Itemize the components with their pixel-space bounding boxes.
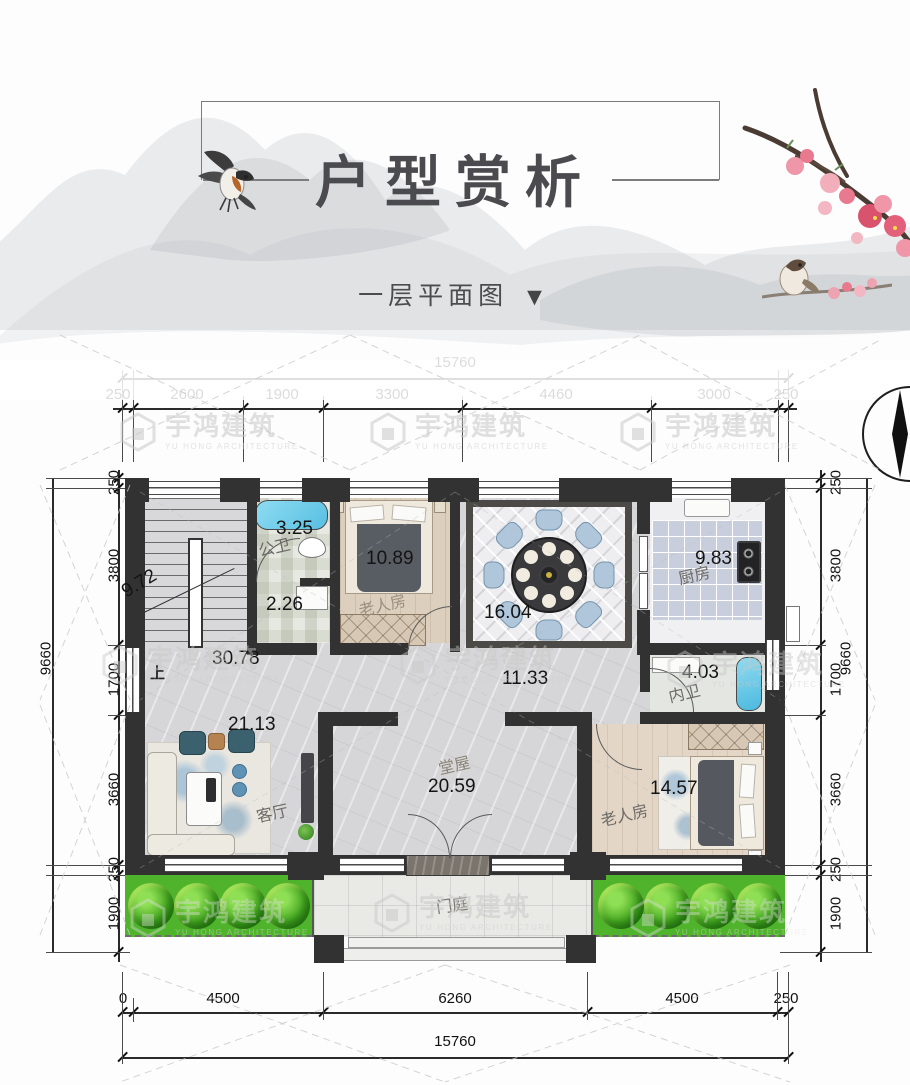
yuhong-logo-icon (618, 412, 658, 452)
toilet (298, 537, 326, 558)
dim-label: 6260 (425, 990, 485, 1007)
sofa-seat (147, 834, 235, 856)
step-post (314, 935, 344, 963)
bush (128, 883, 174, 929)
dim-label: 3660 (828, 760, 845, 820)
dining-chair (536, 620, 563, 641)
hallmid-area: 11.33 (502, 668, 548, 690)
wall-living-hall (318, 712, 333, 857)
dim-line (122, 1057, 788, 1059)
wall-pier (559, 478, 672, 502)
witness-line (780, 645, 826, 646)
yuhong-logo-icon (368, 412, 408, 452)
kitchen-sink (684, 499, 730, 517)
dim-bottom-total: 15760 (415, 1033, 495, 1050)
window-bottom-hall-l (340, 858, 404, 872)
window-bottom-hall-r (492, 858, 564, 872)
witness-line (780, 715, 826, 716)
witness-line (323, 972, 324, 1020)
entry-threshold (406, 855, 490, 876)
witness-line (46, 478, 130, 479)
porch-post (570, 852, 606, 880)
stairs-up-label: 上 (150, 662, 165, 683)
witness-line (780, 952, 872, 953)
stool (232, 782, 247, 797)
dim-label: 1900 (106, 884, 123, 944)
wall-bath2-bottom (640, 712, 785, 724)
bush (736, 883, 782, 929)
hallwest-area: 30.78 (212, 648, 260, 670)
flying-bird-icon (196, 146, 266, 221)
coffee-table-tray (206, 778, 216, 802)
dim-label: 4500 (652, 990, 712, 1007)
dim-label: 1700 (106, 650, 123, 710)
dim-line (52, 478, 54, 952)
dim-label: 1900 (828, 884, 845, 944)
dining-area: 16.04 (484, 602, 532, 624)
bush (644, 883, 690, 929)
watermark-cn: 宇鸿建筑 (165, 413, 299, 439)
watermark-cn: 宇鸿建筑 (415, 413, 549, 439)
dim-label: 4500 (193, 990, 253, 1007)
witness-line (587, 972, 588, 1020)
armchair (179, 731, 206, 755)
witness-line (46, 875, 130, 876)
dining-chair (484, 562, 505, 589)
witness-line (243, 396, 244, 462)
dining-chair (536, 510, 563, 531)
kitchen-door-leaf (639, 573, 648, 609)
bed-bottom-blanket (698, 760, 734, 846)
wall-pier (302, 478, 350, 502)
watermark: 宇鸿建筑YU HONG ARCHITECTURE (368, 412, 549, 452)
bed-top-pillow-r (391, 505, 426, 523)
witness-line (462, 396, 463, 462)
witness-line (46, 488, 130, 489)
bush (174, 883, 220, 929)
witness-line (651, 396, 652, 462)
wall-bath2-left (640, 655, 650, 692)
plant (298, 824, 314, 840)
window-right-hall (766, 640, 780, 690)
wall-kitchen-bottom (637, 643, 785, 655)
witness-line (46, 865, 130, 866)
dim-label: 3660 (106, 760, 123, 820)
bush (598, 883, 644, 929)
wall-pier (125, 478, 149, 502)
window-bottom-living (165, 858, 287, 872)
wall-pier (731, 478, 785, 502)
window-sill-right (786, 606, 800, 642)
dim-line (113, 408, 797, 410)
stove-burner (742, 565, 755, 578)
bedbottom-area: 14.57 (650, 778, 698, 800)
bathtub-right (736, 657, 762, 711)
sitting-bird-icon (762, 245, 892, 315)
dim-label: 250 (766, 990, 806, 1007)
wall-pier (428, 478, 479, 502)
watermark-text: 宇鸿建筑YU HONG ARCHITECTURE (165, 413, 299, 451)
bed-bottom-pillow (739, 764, 756, 799)
dim-left-total: 9660 (38, 629, 55, 689)
bush (220, 883, 266, 929)
mainhall-area: 20.59 (428, 776, 476, 798)
step-post (566, 935, 596, 963)
floorplan-page: 户型赏析 一层平面图▼ (0, 0, 910, 1085)
dim-line (122, 1012, 788, 1014)
side-table (208, 733, 225, 750)
stool (232, 764, 247, 779)
bed-top-pillow-l (349, 505, 384, 523)
porch-post (288, 852, 324, 880)
dim-label: 3800 (828, 536, 845, 596)
watermark: 宇鸿建筑YU HONG ARCHITECTURE (118, 412, 299, 452)
witness-line (788, 972, 789, 1064)
watermark-en: YU HONG ARCHITECTURE (415, 442, 549, 451)
dining-chair (594, 562, 615, 589)
dining-plates (542, 542, 556, 556)
bush (264, 883, 310, 929)
watermark-en: YU HONG ARCHITECTURE (165, 442, 299, 451)
yuhong-logo-icon (118, 412, 158, 452)
porch-step (348, 937, 565, 948)
wall-hall-bedroom (577, 712, 592, 857)
stair-rail (188, 538, 203, 648)
watermark: 宇鸿建筑YU HONG ARCHITECTURE (618, 412, 799, 452)
bed-bottom-pillow (739, 804, 756, 839)
window-left-hall (126, 648, 140, 712)
witness-line (780, 865, 872, 866)
witness-line (46, 952, 130, 953)
wall-dining-kitchen-up (637, 498, 650, 534)
witness-line (780, 875, 872, 876)
watermark-text: 宇鸿建筑YU HONG ARCHITECTURE (415, 413, 549, 451)
wall-pier (220, 478, 260, 502)
tv-console (301, 753, 314, 823)
living-area: 21.13 (228, 714, 276, 736)
bedtop-area: 10.89 (366, 548, 414, 570)
witness-line (133, 998, 134, 1022)
porch-step (336, 948, 577, 961)
dim-label: 250 (828, 453, 845, 513)
down-triangle-icon: ▼ (522, 283, 552, 312)
witness-line (780, 488, 872, 489)
kitchen-door-leaf (639, 536, 648, 572)
dim-line (866, 478, 868, 952)
lobby-area: 2.26 (266, 594, 303, 616)
subtitle-text: 一层平面图 (358, 282, 508, 310)
porch-label: 门庭 (434, 890, 469, 918)
wall-bedtop-bottom (330, 643, 408, 655)
witness-line (323, 396, 324, 462)
window-bottom-bedroom (610, 858, 742, 872)
witness-line (780, 478, 872, 479)
bush (690, 883, 736, 929)
wall-bath-bed (330, 498, 340, 652)
wall-hall-stub-left (333, 712, 398, 726)
witness-line (777, 972, 778, 1020)
nightstand (748, 742, 762, 755)
coffee-table (186, 772, 222, 826)
dining-garnish (546, 572, 552, 578)
dim-label: 1700 (828, 650, 845, 710)
stove-burner (742, 547, 755, 560)
witness-line (122, 972, 123, 1064)
